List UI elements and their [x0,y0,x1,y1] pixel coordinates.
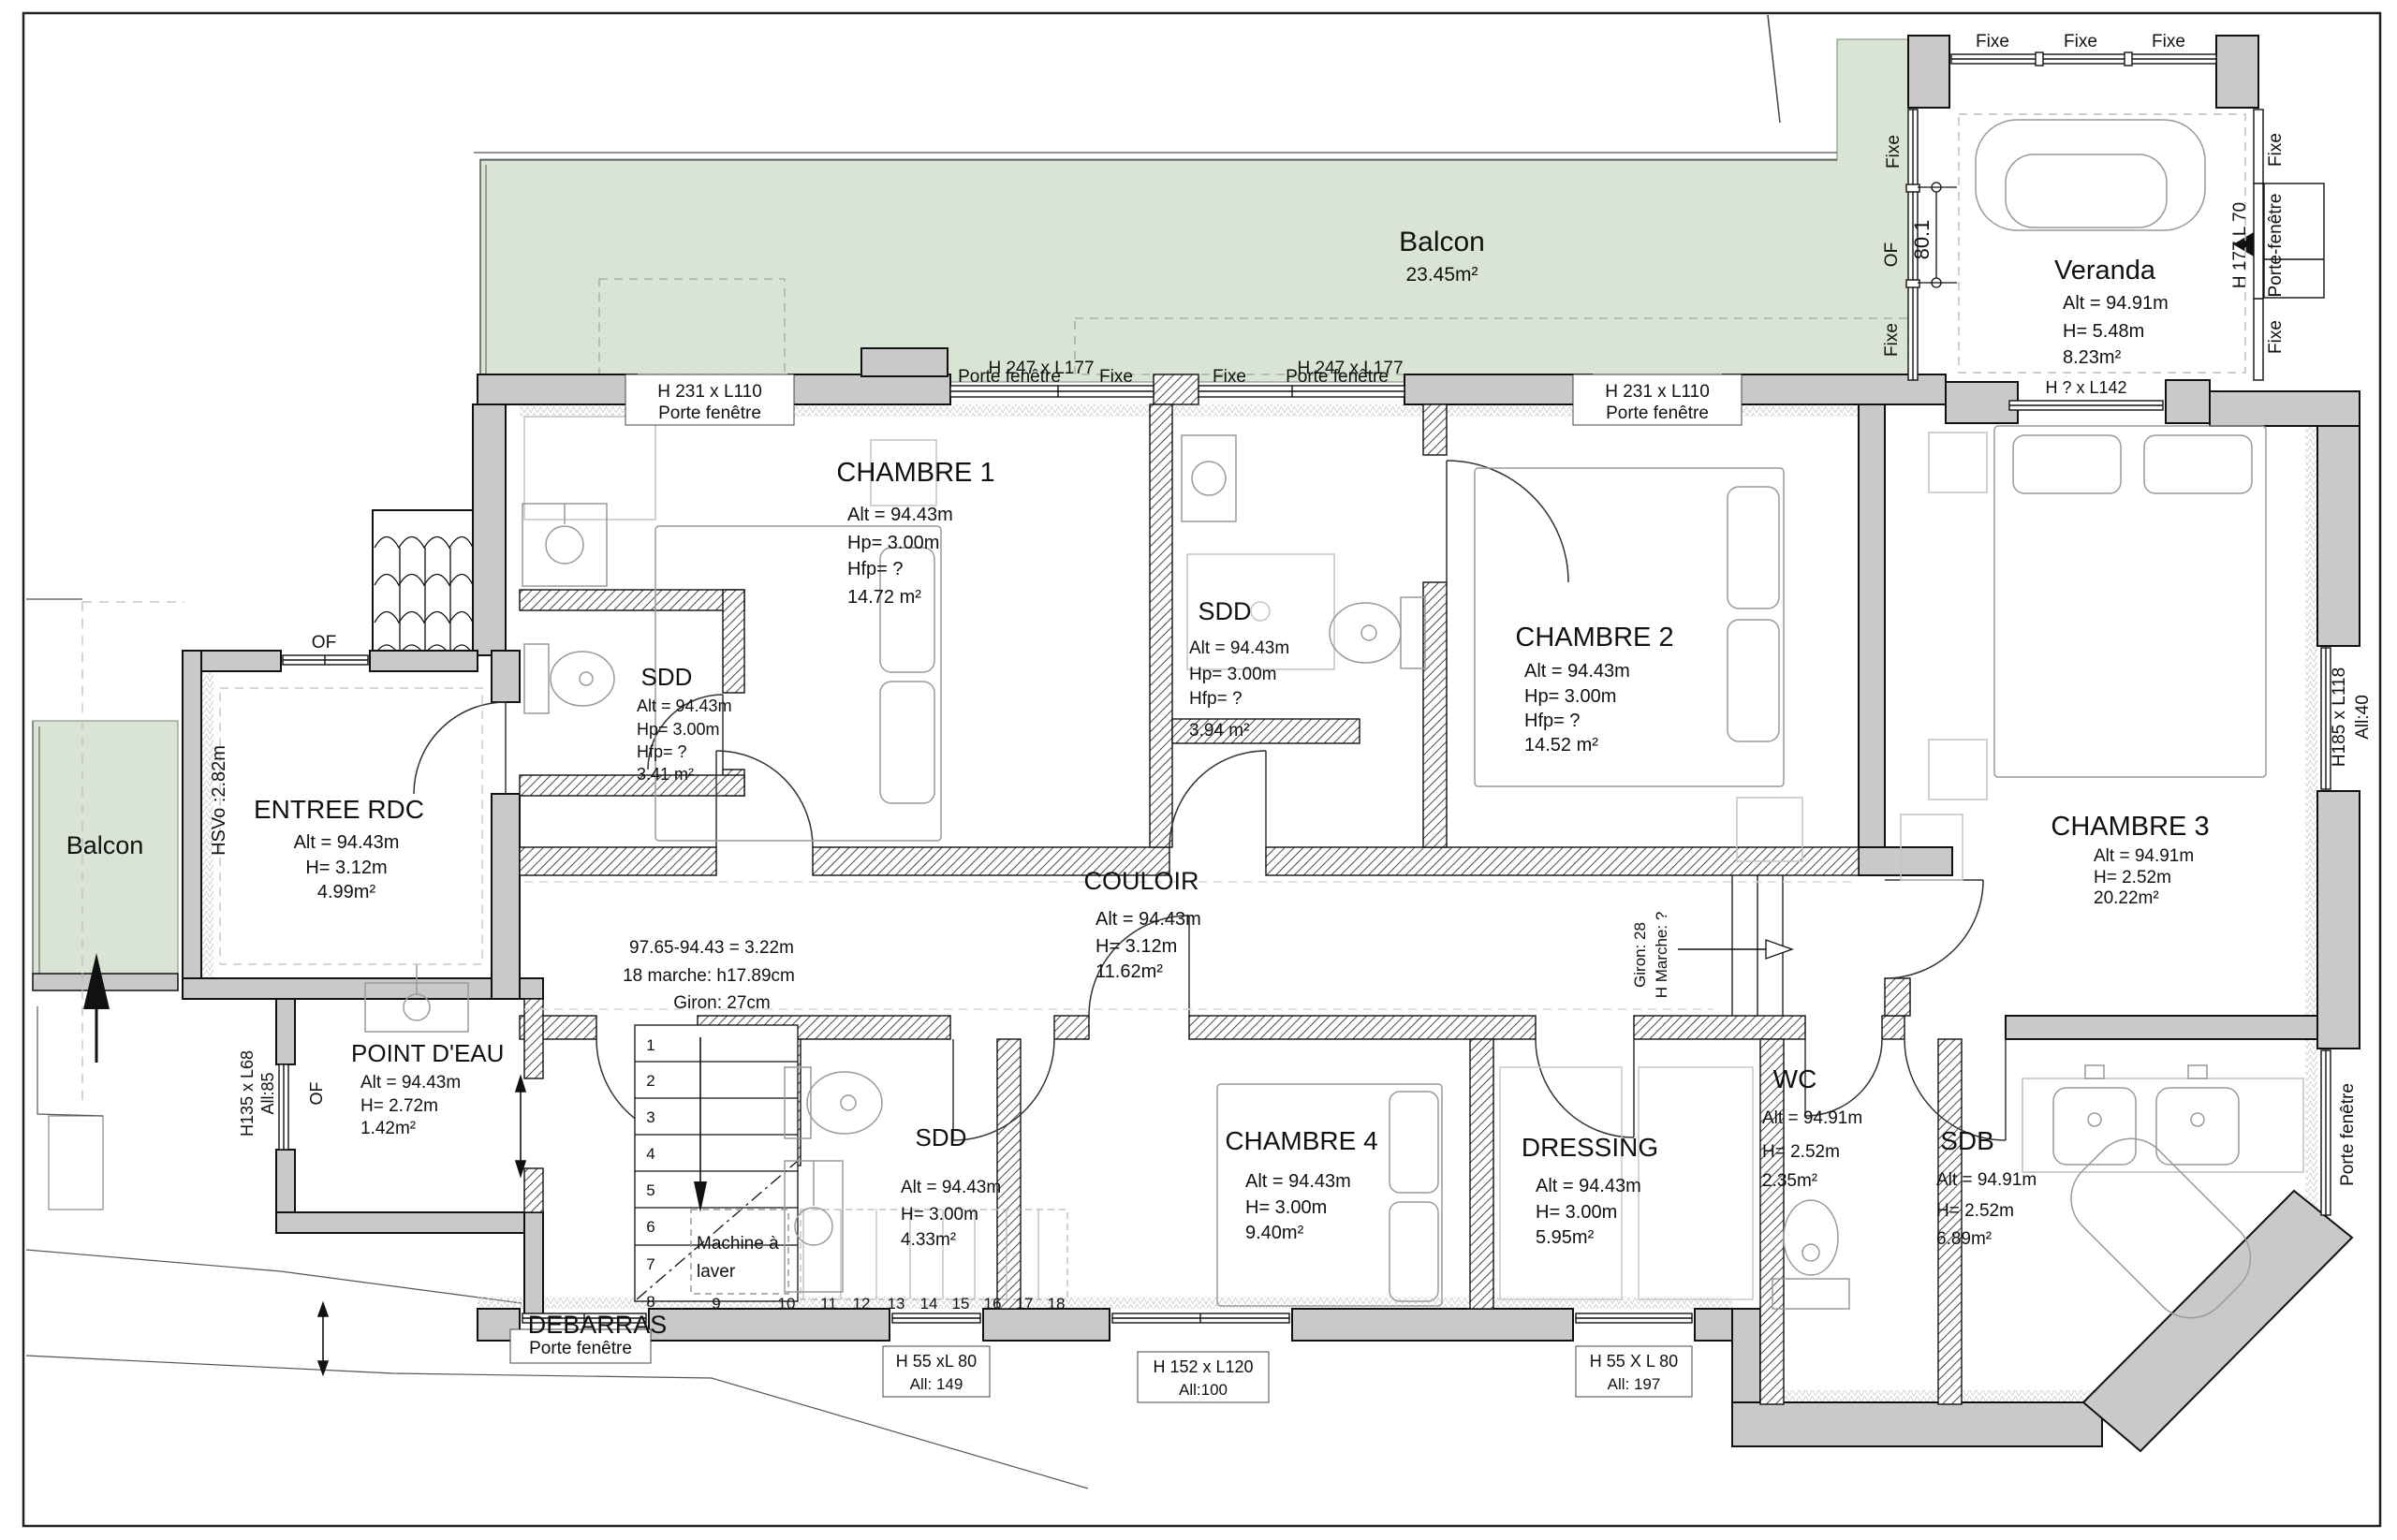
veranda-bottom-window-icon [2009,401,2163,410]
veranda-alt: Alt = 94.91m [2063,293,2169,314]
window-band-b-icon [1198,386,1404,397]
south-w2-all: All:100 [1179,1381,1228,1399]
dressing-alt: Alt = 94.43m [1536,1176,1641,1196]
wc-alt: Alt = 94.91m [1762,1108,1862,1128]
balcon-top-area: 23.45m² [1405,264,1478,286]
sdd-bottom-title: SDD [916,1123,967,1151]
win-top-fixe2: Fixe [1213,367,1246,387]
veranda-right-dim: H 177 L 70 [2230,202,2250,288]
balcon-left-title: Balcon [66,831,144,859]
sdd-top-title: SDD [1198,597,1251,625]
sdd-top-alt: Alt = 94.43m [1189,638,1289,658]
south-pf-label: Porte fenêtre [529,1339,632,1358]
step-11: 11 [820,1295,837,1313]
chambre1-hfp: Hfp= ? [847,559,903,579]
chambre1-title: CHAMBRE 1 [836,458,994,488]
window-pde-icon [279,1064,288,1150]
entree-alt: Alt = 94.43m [294,832,400,853]
win-top-pf1: Porte fenêtre [958,367,1061,387]
window-band-a-icon [950,386,1154,397]
step-7: 7 [646,1255,654,1273]
veranda-left-fixe-1: Fixe [1884,135,1904,169]
machine-line2: laver [697,1262,736,1282]
south-w3-all: All: 197 [1608,1375,1661,1393]
chambre4-title: CHAMBRE 4 [1225,1126,1377,1155]
couloir-area: 11.62m² [1096,961,1163,982]
couloir-h: H= 3.12m [1096,936,1177,957]
balcony-top-area [474,39,1910,382]
sdb-alt: Alt = 94.91m [1936,1170,2037,1190]
sdd-left-alt: Alt = 94.43m [637,697,732,715]
win-top-pf2: Porte fenêtre [1286,367,1389,387]
win-nl-dim: H 231 x L110 [657,382,762,402]
chambre3-area: 20.22m² [2094,888,2159,908]
veranda-bottom-dim: H ? x L142 [2045,378,2126,397]
sdd-left-title: SDD [641,663,693,691]
chambre2-hp: Hp= 3.00m [1524,686,1616,707]
sdb-title: SDB [1940,1126,1994,1155]
step-3: 3 [646,1108,654,1126]
step-6: 6 [646,1218,654,1236]
veranda-left-of: OF [1882,242,1902,267]
sdd-top-hfp: Hfp= ? [1189,689,1243,709]
door-chambre1 [716,751,813,847]
pde-alt: Alt = 94.43m [360,1073,461,1093]
chambre2-alt: Alt = 94.43m [1524,661,1630,682]
door-sdd-top [1447,461,1568,582]
step-13: 13 [888,1295,905,1313]
entree-hsvo: HSVo :2.82m [209,745,229,856]
veranda-area: 8.23m² [2063,347,2122,368]
east-pf: Porte fenêtre [2338,1083,2358,1186]
chambre1-hp: Hp= 3.00m [847,533,939,553]
step-8: 8 [646,1293,654,1311]
south-w2-dim: H 152 x L120 [1153,1357,1253,1376]
veranda-fixe-3: Fixe [2152,32,2185,51]
pde-of: OF [307,1081,326,1105]
south-w1-dim: H 55 xL 80 [896,1352,977,1371]
pde-area: 1.42m² [360,1119,416,1138]
entree-title: ENTREE RDC [254,795,424,824]
couloir-alt: Alt = 94.43m [1096,909,1201,930]
stairs-note-3: Giron: 27cm [673,993,770,1013]
step-15: 15 [952,1295,970,1313]
step-4: 4 [646,1145,654,1163]
east-dim: H185 x L118 [2330,667,2349,767]
chambre4-area: 9.40m² [1245,1223,1304,1243]
step-18: 18 [1048,1295,1066,1313]
floor-plan-page: Balcon 23.45m² H 247 x L177 H 247 x L177… [0,0,2397,1540]
veranda-fixe-1: Fixe [1976,32,2009,51]
sdd-left-area: 3.41 m² [637,765,694,784]
entree-of: OF [312,633,336,653]
win-nl-type: Porte fenêtre [658,403,761,423]
pde-h: H= 2.72m [360,1096,438,1116]
veranda-top-windows-icon [1951,52,2216,66]
veranda-right-fixe-2: Fixe [2266,320,2286,354]
pde-dim: H135 x L68 [238,1050,257,1137]
marche-note-giron: Giron: 28 [1631,922,1649,988]
step-5: 5 [646,1181,654,1199]
chambre3-title: CHAMBRE 3 [2051,812,2209,842]
step-14: 14 [920,1295,938,1313]
stairs-note-2: 18 marche: h17.89cm [623,966,795,986]
marche-note-h: H Marche: ? [1653,912,1670,999]
win-top-fixe1: Fixe [1099,367,1133,387]
steps-landing-right [1678,875,1792,1016]
sdd-top-hp: Hp= 3.00m [1189,665,1276,684]
door-entree [414,702,506,794]
window-south-w2-icon [1112,1313,1289,1323]
roof-tiles [373,510,473,660]
win-nr-type: Porte fenêtre [1606,403,1709,423]
dressing-h: H= 3.00m [1536,1202,1617,1223]
sdd-bottom-alt: Alt = 94.43m [901,1178,1001,1197]
window-south-w3-icon [1576,1313,1692,1323]
window-entree-of-icon [283,655,368,665]
sdb-area: 6.89m² [1936,1229,1992,1249]
sdd-left-hp: Hp= 3.00m [637,720,720,739]
wc-h: H= 2.52m [1762,1142,1840,1162]
step-16: 16 [984,1295,1002,1313]
veranda-right-pf: Porte-fenêtre [2266,194,2286,298]
step-1: 1 [646,1036,654,1054]
chambre3-alt: Alt = 94.91m [2094,846,2194,866]
step-9: 9 [712,1295,720,1313]
entree-h: H= 3.12m [305,858,387,878]
balcon-top-title: Balcon [1399,227,1485,257]
pde-title: POINT D'EAU [351,1039,504,1067]
door-chambre3 [1885,880,1983,978]
east-all: All:40 [2353,695,2373,740]
chambre1-alt: Alt = 94.43m [847,505,953,525]
chambre2-title: CHAMBRE 2 [1515,623,1673,653]
south-w3-dim: H 55 X L 80 [1590,1352,1678,1371]
wc-area: 2.35m² [1762,1171,1817,1191]
entree-area: 4.99m² [317,882,376,902]
pde-all: All:85 [258,1072,277,1114]
step-10: 10 [778,1295,796,1313]
debarras-title: DEBARRAS [528,1311,668,1339]
stairs-main [635,1025,798,1301]
floor-plan-drawing: Balcon 23.45m² H 247 x L177 H 247 x L177… [0,0,2397,1540]
veranda-h: H= 5.48m [2063,321,2144,342]
stairs-note-1: 97.65-94.43 = 3.22m [629,938,794,958]
sdd-left-hfp: Hfp= ? [637,742,687,761]
veranda-left-dim: 80.1 [1910,220,1934,260]
veranda-left-fixe-2: Fixe [1882,323,1902,357]
sdd-top-area: 3.94 m² [1189,721,1249,741]
veranda-title: Veranda [2054,256,2156,286]
wc-title: WC [1773,1064,1817,1093]
step-12: 12 [853,1295,871,1313]
chambre2-hfp: Hfp= ? [1524,711,1580,731]
chambre4-alt: Alt = 94.43m [1245,1171,1351,1192]
door-chambre2 [1169,751,1266,847]
door-dressing [1536,1039,1634,1137]
step-17: 17 [1016,1295,1034,1313]
dressing-title: DRESSING [1522,1133,1658,1162]
step-2: 2 [646,1072,654,1090]
chambre4-h: H= 3.00m [1245,1197,1327,1218]
chambre1-area: 14.72 m² [847,587,921,608]
window-south-w1-icon [892,1313,980,1323]
win-nr-dim: H 231 x L110 [1605,382,1710,402]
veranda-fixe-2: Fixe [2064,32,2097,51]
sdd-bottom-h: H= 3.00m [901,1205,978,1225]
chambre3-h: H= 2.52m [2094,868,2171,887]
veranda-right-fixe-1: Fixe [2266,133,2286,167]
machine-line1: Machine à [697,1234,779,1254]
south-w1-all: All: 149 [910,1375,963,1393]
sdd-bottom-area: 4.33m² [901,1230,956,1250]
sdb-h: H= 2.52m [1936,1201,2014,1221]
dressing-area: 5.95m² [1536,1227,1595,1248]
chambre2-area: 14.52 m² [1524,735,1598,755]
couloir-title: COULOIR [1083,867,1198,895]
